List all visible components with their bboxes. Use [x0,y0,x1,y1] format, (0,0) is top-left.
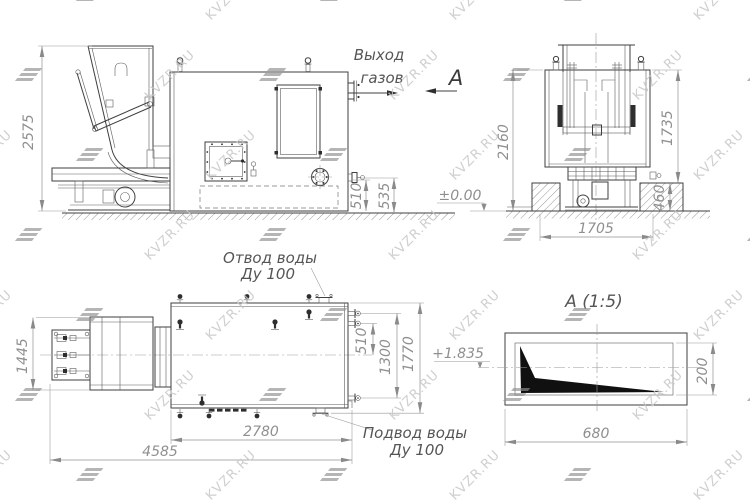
svg-text:2160: 2160 [496,124,512,160]
flange-port [308,165,332,189]
dim-overall-height: 2575 [21,46,92,211]
boiler-body-front [153,72,348,211]
foundation-block-left [532,183,560,211]
water-outlet-flange [311,268,333,303]
dim-foundation-height: 460 [652,183,670,211]
level-mark-zero: ±0.00 [437,188,506,211]
svg-text:535: 535 [377,183,393,210]
svg-text:680: 680 [583,426,610,442]
front-view: Выход газов А 2575 510 535 [21,46,506,220]
right-side-stubs [348,309,360,403]
svg-text:4585: 4585 [142,444,178,460]
svg-text:1705: 1705 [578,221,614,237]
wedge-profile [520,346,664,393]
inspection-door [275,85,323,158]
dim-detail-height: 200 [676,343,717,395]
safety-valve-right [304,58,313,72]
water-inlet-label-line1: Подвод воды [363,424,467,442]
svg-text:2780: 2780 [243,424,279,440]
svg-text:510: 510 [354,328,370,355]
ground-hatch [62,213,455,220]
gas-outlet-label-line1: Выход [354,46,405,64]
top-view: Отвод воды Ду 100 Подвод воды Ду 100 +1.… [15,249,490,464]
svg-text:200: 200 [695,358,711,385]
svg-text:2575: 2575 [21,114,37,150]
side-view: 2160 1735 460 1705 [496,33,710,241]
fuel-hopper [88,46,153,150]
svg-text:+1.835: +1.835 [432,346,484,362]
level-mark-1835: +1.835 [432,346,490,369]
gas-outlet-arrow [348,90,398,96]
dim-height-to-foundation: 1735 [652,70,682,183]
drain-valve [348,173,365,183]
corner-valve-left [552,56,560,70]
top-edge-studs [177,294,312,303]
corner-valve-right [637,56,645,70]
detail-title: А (1:5) [564,292,623,312]
lifting-lug-left [558,105,563,127]
dim-outlet-offset: 510 [354,324,377,356]
dim-outlet-height: 510 [349,180,370,211]
svg-text:1445: 1445 [15,338,31,374]
lifting-lug-right [631,105,636,127]
dim-overall-length: 4585 [50,384,352,464]
section-letter: А [447,66,463,90]
safety-valve-left [176,58,185,72]
boiler-body-top [171,303,352,412]
svg-text:1300: 1300 [378,339,394,375]
stoker-mechanism-top [52,317,171,390]
stoker-mechanism [52,70,170,210]
internal-piping [558,62,636,163]
water-outlet-label-line2: Ду 100 [240,265,295,283]
drawing-sheet: Выход газов А 2575 510 535 [0,0,750,500]
inner-valves-top [176,309,313,405]
manhole-door [205,142,247,181]
detail-view-a: А (1:5) 200 680 [478,292,717,446]
engineering-drawing: Выход газов А 2575 510 535 [0,0,750,500]
water-inlet-label-line2: Ду 100 [389,441,444,459]
svg-text:510: 510 [349,183,365,210]
gas-outlet-flange [348,81,360,102]
dim-pipe-spacing: 1300 [361,314,401,399]
svg-text:460: 460 [652,185,668,212]
dim-detail-length: 680 [505,409,687,446]
svg-text:1770: 1770 [401,336,417,372]
hidden-foundation-outline [200,186,338,208]
hopper-side [558,45,635,135]
svg-text:±0.00: ±0.00 [439,188,482,204]
front-valve [251,162,256,176]
door-handle [225,158,231,164]
svg-text:1735: 1735 [660,110,676,146]
gas-outlet-label-line2: газов [360,69,403,87]
